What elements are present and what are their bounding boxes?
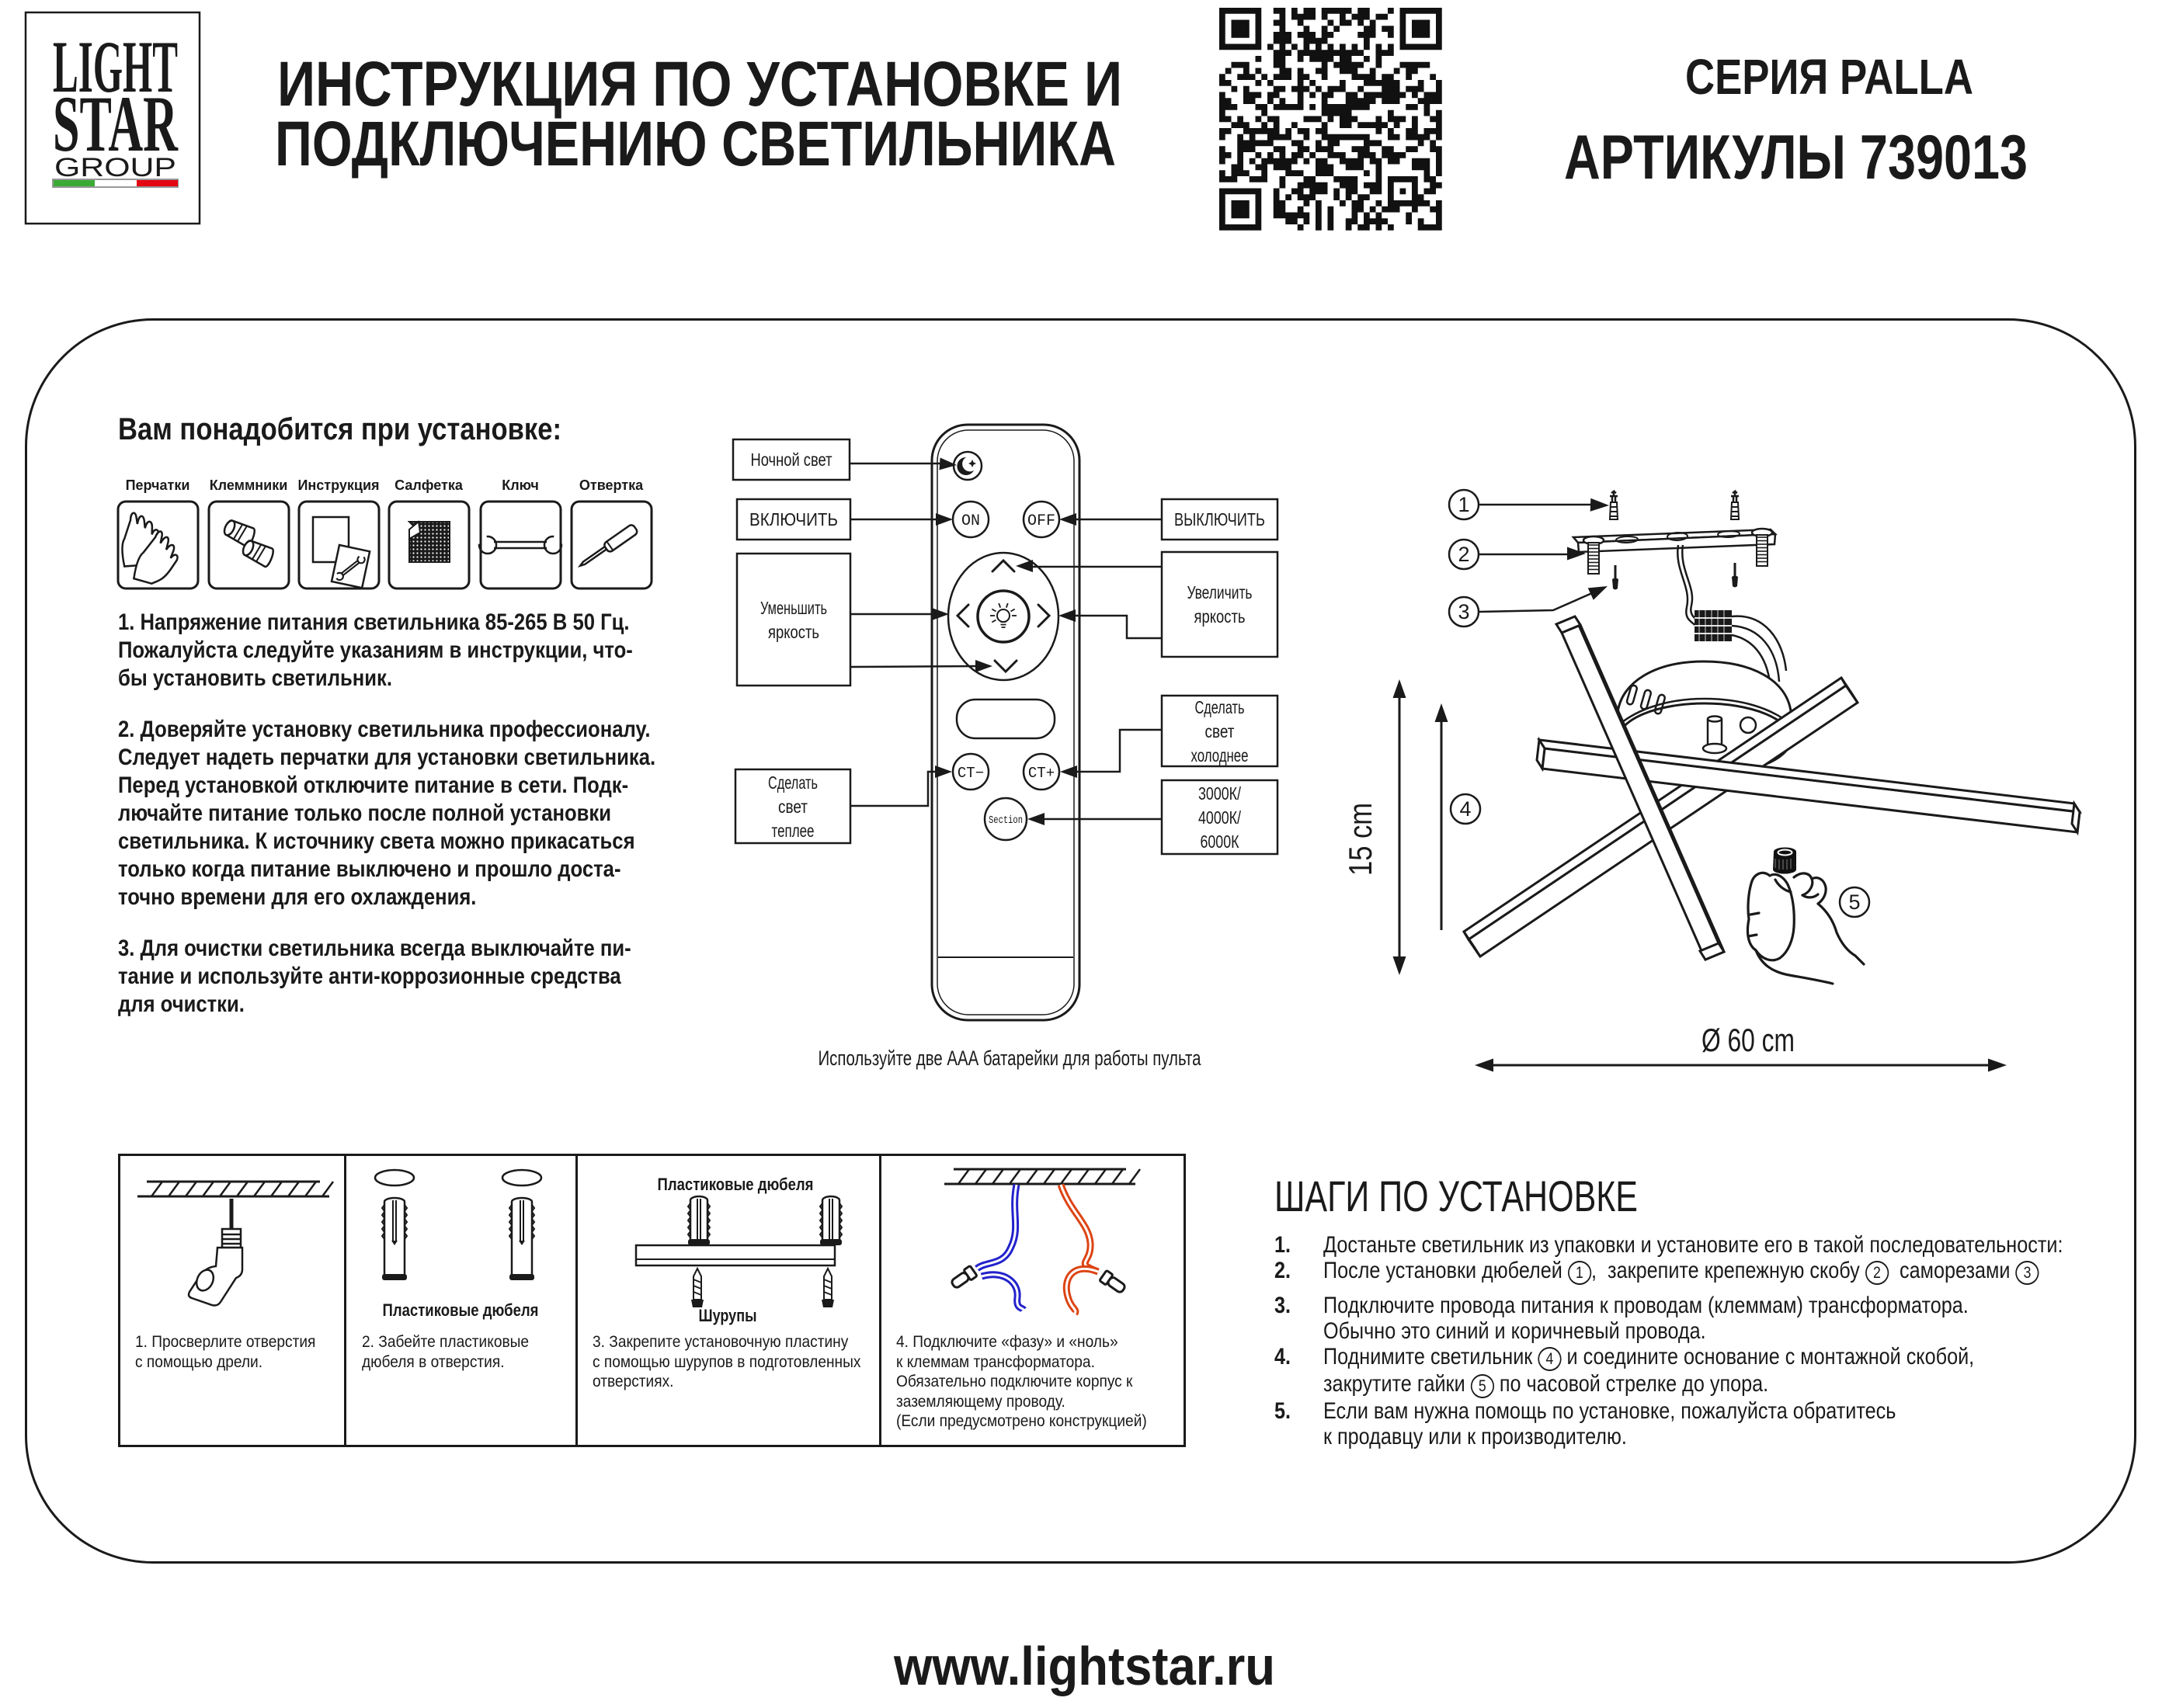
svg-text:2: 2 [1458, 543, 1469, 566]
svg-text:ВЫКЛЮЧИТЬ: ВЫКЛЮЧИТЬ [1174, 509, 1265, 529]
svg-text:Увеличить: Увеличить [1187, 582, 1253, 602]
svg-text:6000К: 6000К [1201, 831, 1239, 852]
svg-text:Клеммники: Клеммники [210, 477, 288, 493]
svg-text:CT−: CT− [958, 765, 984, 782]
svg-text:Уменьшить: Уменьшить [760, 598, 827, 618]
svg-text:яркость: яркость [1194, 606, 1246, 627]
svg-text:3000К/: 3000К/ [1198, 783, 1241, 804]
svg-text:Пластиковые дюбеля: Пластиковые дюбеля [658, 1175, 814, 1194]
svg-text:теплее: теплее [772, 821, 815, 841]
svg-text:GROUP: GROUP [54, 153, 176, 182]
svg-text:ВКЛЮЧИТЬ: ВКЛЮЧИТЬ [749, 509, 838, 529]
svg-text:Шурупы: Шурупы [699, 1306, 757, 1325]
svg-text:холоднее: холоднее [1191, 745, 1249, 765]
svg-text:СЕРИЯ PALLA: СЕРИЯ PALLA [1685, 49, 1973, 105]
svg-text:ПОДКЛЮЧЕНИЮ СВЕТИЛЬНИКА: ПОДКЛЮЧЕНИЮ СВЕТИЛЬНИКА [275, 109, 1116, 179]
svg-text:www.lightstar.ru: www.lightstar.ru [893, 1636, 1275, 1696]
svg-text:яркость: яркость [768, 622, 819, 642]
svg-text:ШАГИ ПО УСТАНОВКЕ: ШАГИ ПО УСТАНОВКЕ [1274, 1172, 1638, 1220]
svg-text:Ключ: Ключ [502, 477, 539, 493]
svg-text:OFF: OFF [1027, 512, 1055, 530]
svg-text:1: 1 [1458, 493, 1469, 516]
svg-text:свет: свет [1205, 721, 1235, 741]
svg-text:Сделать: Сделать [768, 772, 818, 793]
svg-text:Инструкция: Инструкция [297, 477, 379, 493]
svg-text:Сделать: Сделать [1195, 697, 1245, 717]
svg-text:Пластиковые дюбеля: Пластиковые дюбеля [383, 1300, 539, 1320]
svg-text:Вам понадобится при установке:: Вам понадобится при установке: [118, 412, 561, 446]
svg-text:Салфетка: Салфетка [395, 477, 464, 493]
svg-text:15 cm: 15 cm [1342, 803, 1378, 876]
svg-text:Отвертка: Отвертка [579, 477, 644, 493]
svg-text:4000К/: 4000К/ [1198, 807, 1241, 828]
svg-text:5: 5 [1848, 890, 1860, 914]
svg-text:Ø 60 cm: Ø 60 cm [1701, 1022, 1795, 1058]
svg-text:АРТИКУЛЫ 739013: АРТИКУЛЫ 739013 [1564, 123, 2028, 193]
svg-text:ON: ON [961, 512, 980, 530]
svg-text:Ночной свет: Ночной свет [751, 450, 832, 470]
svg-text:3: 3 [1458, 600, 1469, 623]
svg-text:Section: Section [989, 814, 1023, 827]
svg-text:Используйте две ААА батарейк: Используйте две ААА батарейки для работы… [819, 1047, 1202, 1070]
svg-text:4: 4 [1459, 797, 1471, 821]
svg-text:свет: свет [778, 797, 808, 817]
svg-text:Перчатки: Перчатки [126, 477, 190, 493]
svg-text:CT+: CT+ [1028, 765, 1055, 782]
